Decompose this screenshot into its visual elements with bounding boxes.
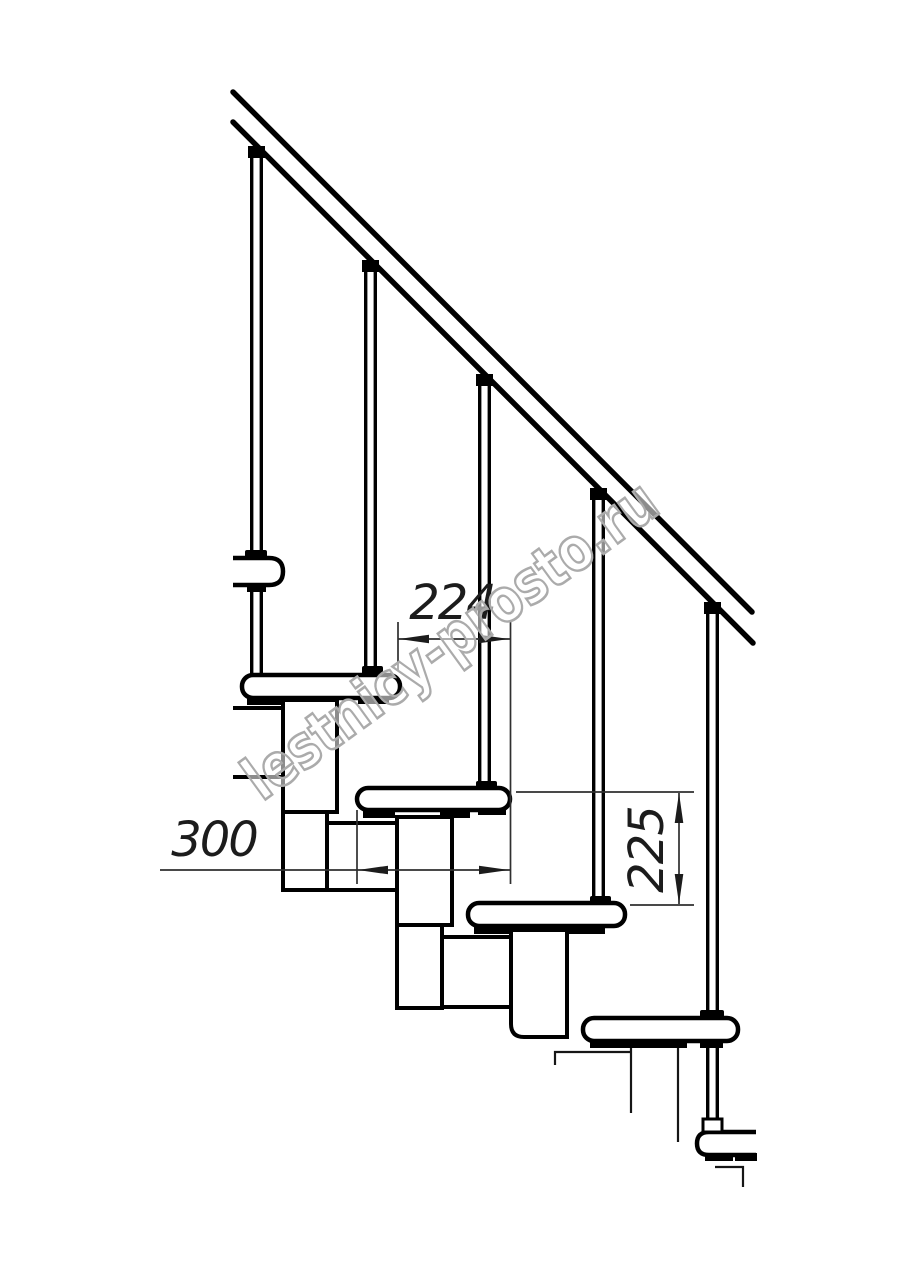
dim-300-arrow-right xyxy=(479,866,509,875)
tread-2 xyxy=(357,788,510,810)
bracket-under-tread-5 xyxy=(705,1153,733,1161)
module-box-1-lower xyxy=(283,812,327,890)
module-box-2-socket xyxy=(327,823,403,890)
bracket-under-tread-4-band xyxy=(618,1040,687,1048)
baluster-1 xyxy=(247,146,266,675)
tread-upper-flight-cut xyxy=(233,558,283,585)
dim-225-arrow-up xyxy=(675,793,684,823)
module-box-2 xyxy=(397,817,452,925)
bracket-under-tread-5-band xyxy=(735,1153,757,1161)
module-box-2-lower xyxy=(397,925,442,1008)
module-box-3-socket xyxy=(442,937,518,1007)
bracket-under-tread-3-left xyxy=(474,926,510,934)
bracket-under-tread-2-left xyxy=(363,810,395,818)
bracket-under-tread-4-left xyxy=(590,1040,618,1048)
dim-225-label: 225 xyxy=(619,807,675,893)
module-cut-contour-1 xyxy=(555,1052,630,1065)
baluster-5 xyxy=(704,602,721,1131)
handrail-top-line xyxy=(233,92,752,612)
baluster-5-foot-mount xyxy=(700,1010,724,1019)
baluster-1-foot-mount xyxy=(245,550,267,559)
module-box-3 xyxy=(511,930,567,1037)
module-cut-contour-4 xyxy=(715,1167,743,1187)
tread-5-cut xyxy=(697,1132,756,1155)
tread-4 xyxy=(583,1018,738,1041)
bracket-under-tread-1 xyxy=(247,697,283,705)
baluster-3-foot-mount xyxy=(476,781,497,790)
bracket-under-tread-3-right xyxy=(565,926,605,934)
bracket-under-tread-4-baluster xyxy=(700,1040,723,1048)
watermark-text: lestnicy-prosto.ru xyxy=(230,467,672,815)
dim-225-arrow-down xyxy=(675,874,684,904)
baluster-4-foot-mount xyxy=(590,896,611,905)
dim-300-label: 300 xyxy=(171,812,257,868)
bracket-under-tread-2-mid xyxy=(440,810,470,818)
staircase-drawing-page: 224 300 225 lestnicy-prosto.ru xyxy=(0,0,914,1280)
staircase-drawing: 224 300 225 lestnicy-prosto.ru xyxy=(0,0,914,1280)
tread-3 xyxy=(468,903,625,926)
baluster-5-bottom-collar xyxy=(703,1119,722,1132)
baluster-2 xyxy=(358,260,389,704)
handrail xyxy=(233,92,753,643)
